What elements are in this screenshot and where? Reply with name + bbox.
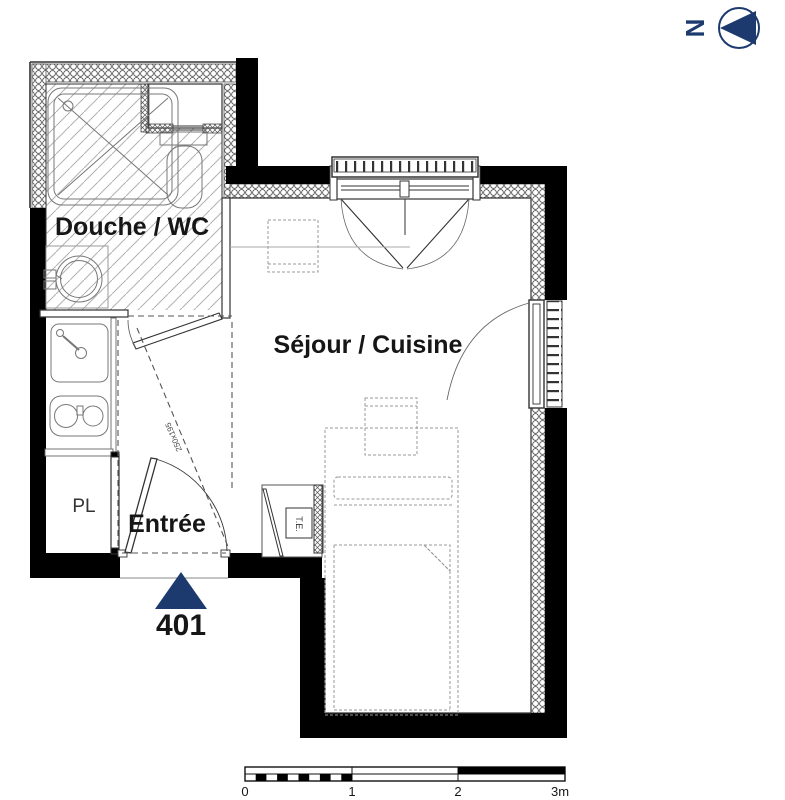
bed bbox=[325, 428, 458, 715]
bathroom-zone bbox=[46, 84, 222, 310]
kitchen-sink bbox=[51, 324, 108, 382]
scale-tick-1: 1 bbox=[348, 784, 355, 799]
nightstand bbox=[365, 398, 417, 455]
room-label-closet: PL bbox=[72, 496, 95, 517]
floor-plan-canvas: Douche / WC Séjour / Cuisine Entrée PL T… bbox=[0, 0, 785, 800]
table bbox=[268, 220, 318, 272]
window-top bbox=[330, 157, 480, 269]
electrical-closet bbox=[262, 485, 323, 557]
unit-marker: 401 bbox=[155, 572, 207, 642]
room-label-living: Séjour / Cuisine bbox=[274, 331, 463, 359]
clearance-dimension: 250x195 bbox=[163, 421, 183, 453]
living-furniture bbox=[230, 220, 458, 715]
scale-bar: 0 1 2 3m bbox=[241, 767, 569, 799]
electrical-panel-label: T.E. bbox=[294, 516, 304, 532]
cooktop bbox=[50, 396, 108, 436]
bathroom-door bbox=[128, 313, 222, 349]
scale-tick-0: 0 bbox=[241, 784, 248, 799]
scale-tick-2: 2 bbox=[454, 784, 461, 799]
north-indicator: N bbox=[680, 8, 759, 48]
scale-tick-3m: 3m bbox=[551, 784, 569, 799]
room-label-bathroom: Douche / WC bbox=[55, 213, 209, 241]
unit-number: 401 bbox=[156, 609, 206, 642]
room-label-entry: Entrée bbox=[128, 510, 206, 538]
north-label: N bbox=[680, 19, 710, 38]
window-right bbox=[447, 300, 562, 408]
